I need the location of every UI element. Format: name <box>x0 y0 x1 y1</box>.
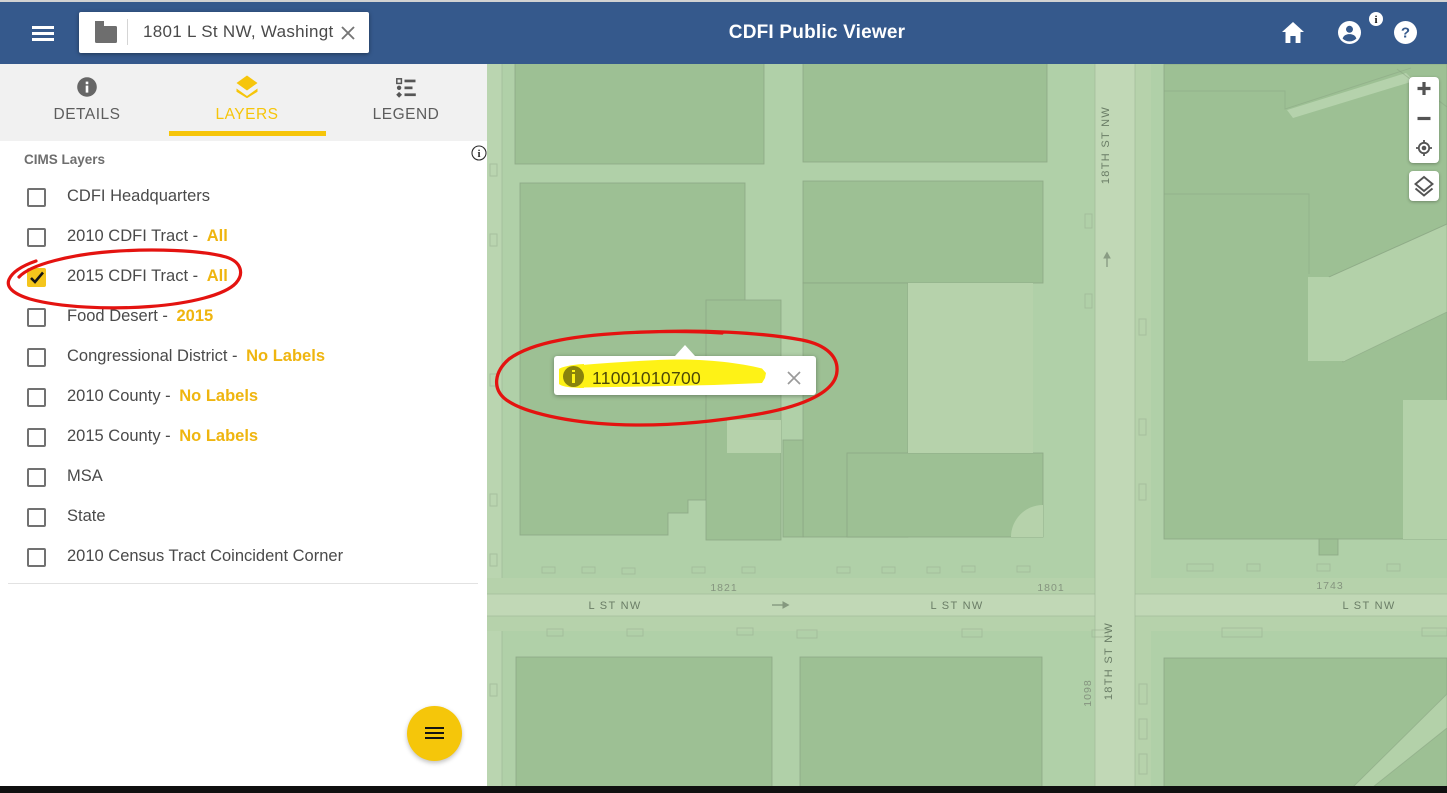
svg-text:i: i <box>1374 14 1377 26</box>
svg-text:1821: 1821 <box>710 582 737 594</box>
svg-text:18TH ST NW: 18TH ST NW <box>1103 622 1115 700</box>
svg-text:?: ? <box>1401 25 1410 42</box>
svg-text:L ST NW: L ST NW <box>930 600 983 612</box>
svg-text:1098: 1098 <box>1082 679 1094 706</box>
svg-text:i: i <box>477 148 480 160</box>
svg-text:1743: 1743 <box>1316 580 1343 592</box>
svg-text:L ST NW: L ST NW <box>588 600 641 612</box>
svg-text:1801: 1801 <box>1037 582 1064 594</box>
svg-text:18TH ST NW: 18TH ST NW <box>1100 106 1112 184</box>
svg-text:L ST NW: L ST NW <box>1342 600 1395 612</box>
